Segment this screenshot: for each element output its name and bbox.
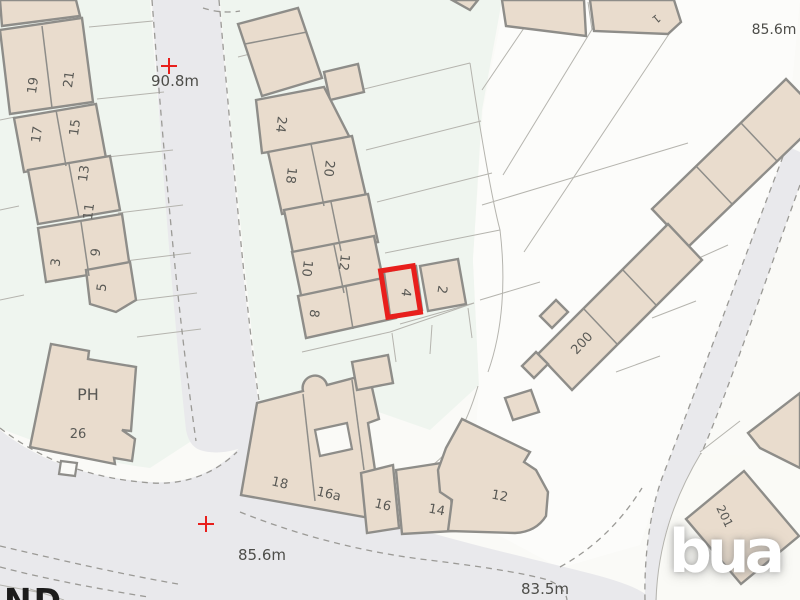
map-viewport[interactable]: 19211715131139524201810128421200201PH261… [0,0,800,600]
ph-porch [59,461,77,476]
house-number-label: 26 [70,427,87,442]
building-5 [86,262,136,312]
benchmark-height-label: 85.6m [752,22,797,38]
house-number-label: 21 [61,70,78,88]
building-1 [590,0,681,34]
house-number-label: 20 [320,159,337,177]
map-canvas: 19211715131139524201810128421200201PH261… [0,0,800,600]
house-number-label: 10 [298,259,315,277]
street-name-partial: ND [4,581,63,600]
house-number-label: 13 [76,164,93,182]
building-garage-top [324,64,364,100]
bua-logo: bua [669,522,780,582]
house-number-label: 17 [29,125,46,143]
house-number-label: 12 [490,488,509,506]
courtyard-16a [315,423,352,456]
benchmark-height-label: 85.6m [238,546,286,564]
house-number-label: 12 [335,253,352,271]
house-number-label: 24 [272,115,289,133]
benchmark-height-label: 90.8m [151,72,199,90]
house-number-label: 14 [427,502,446,520]
house-number-label: 18 [282,166,299,184]
benchmark-height-label: 83.5m [521,580,569,598]
ph-label: PH [77,385,99,404]
building-garage-mid [352,355,393,390]
house-number-label: 11 [81,202,98,220]
house-number-label: 15 [67,118,84,136]
house-number-label: 19 [25,76,42,94]
